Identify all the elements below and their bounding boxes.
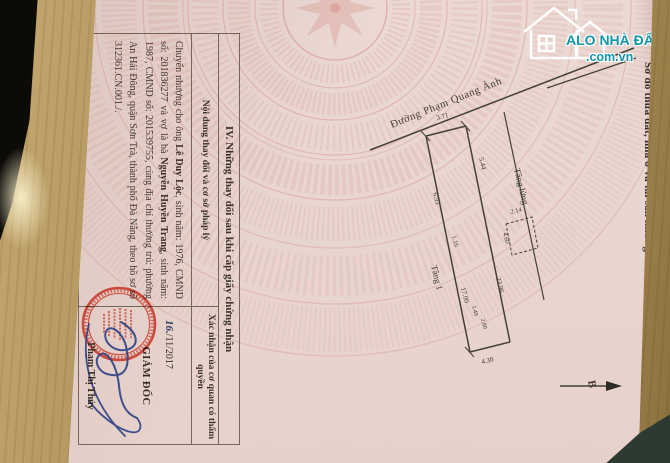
measurement-right-side: 23.96	[494, 277, 506, 295]
section3-heading: Sơ đồ thửa đất, nhà ở và tài sản khác gắ…	[639, 62, 654, 348]
logo-title: ALO NHÀ ĐẤT	[566, 32, 668, 48]
handwritten-day: 16.	[163, 320, 175, 334]
measurement-left-upper: 6.93	[431, 192, 442, 206]
certificate-paper: Đường Phạm Quang Ảnh B Tầng lửng Tầng 1 …	[0, 0, 670, 463]
measurement-bottom: 4.30	[481, 355, 495, 366]
plot-bottom-edge	[470, 342, 510, 352]
measurement-right-upper: 5.44	[477, 157, 488, 171]
section4-table-border: IV. Những thay đổi sau khi cấp giấy chứn…	[78, 33, 240, 445]
measurement-inset: 1.16	[450, 235, 460, 248]
alo-nha-dat-logo: ALO NHÀ ĐẤT .com.vn	[518, 2, 668, 74]
column-header-content: Nội dung thay đổi và cơ sở pháp lý	[192, 34, 218, 306]
measurement-box-top: 2.14	[510, 206, 523, 216]
measurement-notch-a: 1.49	[470, 305, 478, 317]
confirmation-date: 16./11/2017	[163, 320, 175, 440]
north-label: B	[585, 379, 598, 389]
signer-name: Phạm Thị Thủy	[85, 306, 96, 446]
measurement-box-side: 4.60	[501, 232, 511, 245]
plot-left-boundary	[426, 136, 470, 352]
neighbor-boundary	[504, 112, 544, 300]
floor-label-first: Tầng 1	[429, 264, 445, 291]
photo-frame: Đường Phạm Quang Ảnh B Tầng lửng Tầng 1 …	[0, 0, 670, 463]
logo-domain: .com.vn	[586, 50, 633, 64]
section4-column-headers: Nội dung thay đổi và cơ sở pháp lý Xác n…	[191, 34, 218, 444]
measurement-left-side: 17.00	[459, 287, 471, 305]
printed-date: /11/2017	[163, 334, 174, 369]
section4-heading: IV. Những thay đổi sau khi cấp giấy chứn…	[218, 34, 239, 444]
column-header-confirmation: Xác nhận của cơ quan có thẩm quyền	[192, 306, 218, 446]
floor-label-mezzanine: Tầng lửng	[512, 167, 531, 206]
north-arrow-head	[606, 381, 622, 391]
street-name-label: Đường Phạm Quang Ảnh	[389, 75, 504, 131]
plot-frontage-edge	[426, 126, 466, 136]
section4-table: IV. Những thay đổi sau khi cấp giấy chứn…	[78, 33, 240, 445]
transfer-entry-text: Chuyển nhượng cho ông Lê Duy Lộc, sinh n…	[110, 41, 186, 299]
photo-content: Đường Phạm Quang Ảnh B Tầng lửng Tầng 1 …	[0, 0, 670, 463]
measurement-notch-b: 2.80	[479, 318, 487, 330]
